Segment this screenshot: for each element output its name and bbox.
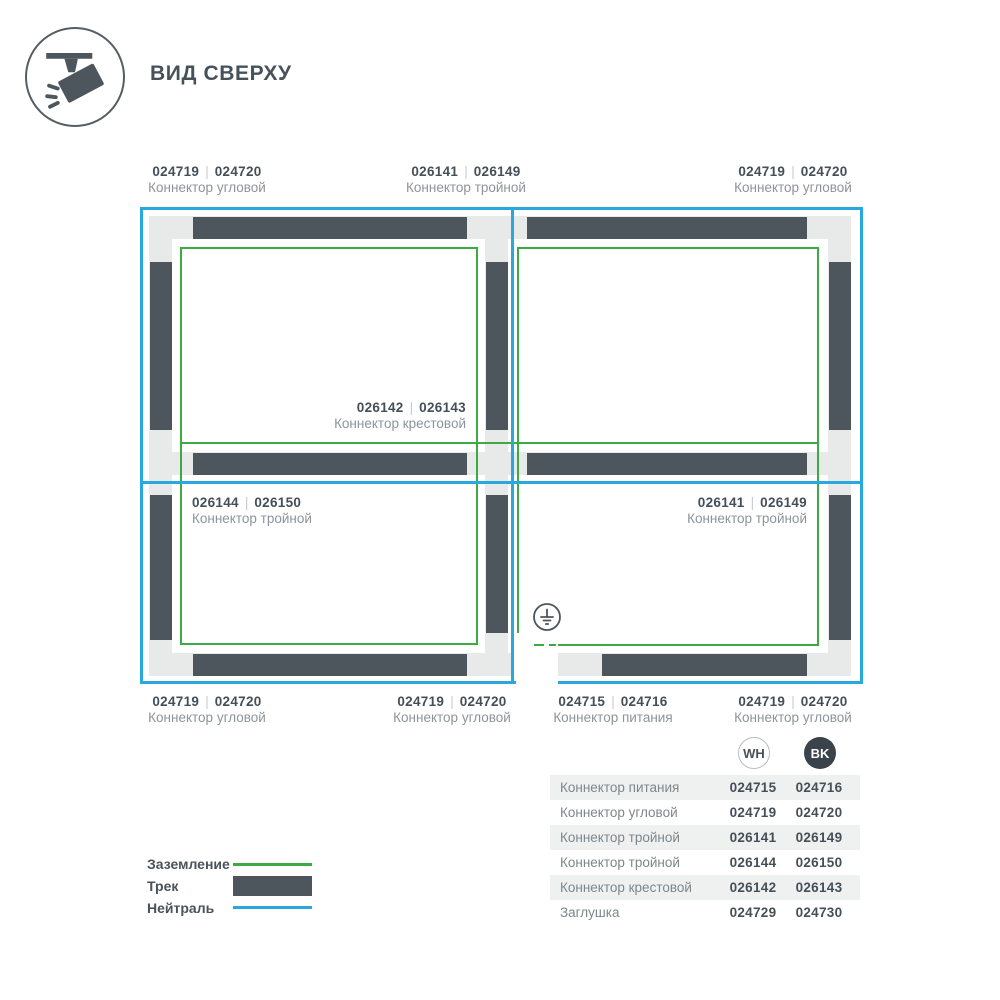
label-code-bk: 026150 [254, 495, 301, 510]
ground-line-segment [180, 442, 819, 444]
label-separator: | [791, 164, 795, 179]
label-code-wh: 026142 [357, 400, 404, 415]
ground-line-segment [558, 644, 818, 646]
cell-bk-code: 026143 [786, 880, 852, 895]
label-code-wh: 026144 [192, 495, 239, 510]
label-separator: | [205, 694, 209, 709]
label-separator: | [791, 694, 795, 709]
ground-line-segment [476, 247, 478, 645]
label-code-bk: 024720 [801, 164, 848, 179]
label-name: Коннектор угловой [57, 180, 357, 196]
neutral-line-swatch [233, 906, 312, 909]
neutral-line-segment [558, 681, 863, 684]
neutral-line-segment [140, 481, 863, 484]
page: ВИД СВЕРХУ [0, 0, 1000, 1000]
track-segment [602, 654, 807, 676]
cell-name: Заглушка [560, 905, 720, 920]
neutral-line-segment [511, 207, 514, 684]
table-row: Заглушка 024729 024730 [550, 900, 860, 925]
table-row: Коннектор питания 024715 024716 [550, 775, 860, 800]
label-code-wh: 026141 [698, 495, 745, 510]
earth-ground-icon [532, 602, 562, 632]
table-row: Коннектор тройной 026141 026149 [550, 825, 860, 850]
label-code-bk: 024720 [215, 164, 262, 179]
wh-color-badge: WH [738, 737, 770, 769]
track-segment [527, 453, 807, 475]
bk-color-badge: BK [804, 737, 836, 769]
ground-line-dash [534, 644, 544, 646]
table-row: Коннектор угловой 024719 024720 [550, 800, 860, 825]
label-code-wh: 024715 [558, 694, 605, 709]
cell-name: Коннектор крестовой [560, 880, 720, 895]
cell-bk-code: 024716 [786, 780, 852, 795]
cell-bk-code: 026150 [786, 855, 852, 870]
track-segment [829, 262, 851, 430]
ground-line-segment [518, 247, 819, 249]
label-code-bk: 026143 [419, 400, 466, 415]
cell-wh-code: 024715 [720, 780, 786, 795]
cell-name: Коннектор питания [560, 780, 720, 795]
ground-line-segment [180, 247, 477, 249]
label-code-bk: 024720 [801, 694, 848, 709]
label-code-wh: 024719 [397, 694, 444, 709]
label-name: Коннектор угловой [643, 710, 943, 726]
ground-line-swatch [233, 863, 312, 866]
cell-wh-code: 026144 [720, 855, 786, 870]
label-code-wh: 026141 [411, 164, 458, 179]
label-code-bk: 026149 [760, 495, 807, 510]
parts-table: Коннектор питания 024715 024716 Коннекто… [550, 775, 860, 925]
connector-label-top-right: 024719|024720 Коннектор угловой [643, 164, 943, 196]
ground-line-dash [549, 644, 556, 646]
label-code-bk: 026149 [474, 164, 521, 179]
label-separator: | [611, 694, 615, 709]
track-segment [150, 495, 172, 640]
label-code-wh: 024719 [738, 694, 785, 709]
track-segment [527, 217, 807, 239]
label-separator: | [450, 694, 454, 709]
label-code-wh: 024719 [152, 694, 199, 709]
track-segment [193, 453, 467, 475]
ground-line-segment [517, 247, 519, 633]
ground-line-segment [180, 247, 182, 645]
label-name: Коннектор тройной [192, 511, 492, 527]
label-separator: | [205, 164, 209, 179]
label-separator: | [410, 400, 414, 415]
ground-line-segment [180, 643, 478, 645]
table-row: Коннектор тройной 026144 026150 [550, 850, 860, 875]
ground-line-segment [817, 247, 819, 646]
connector-label-top-middle: 026141|026149 Коннектор тройной [316, 164, 616, 196]
connector-label-center-cross: 026142|026143 Коннектор крестовой [166, 400, 466, 432]
track-segment [829, 495, 851, 640]
cell-wh-code: 026142 [720, 880, 786, 895]
table-row: Коннектор крестовой 026142 026143 [550, 875, 860, 900]
label-separator: | [245, 495, 249, 510]
cell-bk-code: 026149 [786, 830, 852, 845]
legend-label-ground: Заземление [147, 856, 230, 872]
track-segment [193, 654, 467, 676]
cell-name: Коннектор тройной [560, 855, 720, 870]
cell-bk-code: 024720 [786, 805, 852, 820]
connector-label-middle-left: 026144|026150 Коннектор тройной [192, 495, 492, 527]
label-code-bk: 024720 [215, 694, 262, 709]
label-separator: | [464, 164, 468, 179]
track-segment [193, 217, 467, 239]
label-separator: | [751, 495, 755, 510]
cell-name: Коннектор угловой [560, 805, 720, 820]
neutral-line-segment [140, 681, 516, 684]
label-name: Коннектор угловой [643, 180, 943, 196]
label-name: Коннектор крестовой [166, 416, 466, 432]
cell-wh-code: 024729 [720, 905, 786, 920]
cell-name: Коннектор тройной [560, 830, 720, 845]
label-code-wh: 024719 [152, 164, 199, 179]
track-spotlight-icon [27, 29, 123, 125]
label-name: Коннектор тройной [507, 511, 807, 527]
connector-label-middle-right: 026141|026149 Коннектор тройной [507, 495, 807, 527]
neutral-line-segment [860, 207, 863, 684]
neutral-line-segment [140, 207, 863, 210]
cell-wh-code: 026141 [720, 830, 786, 845]
top-view-icon [25, 27, 125, 127]
track-segment [486, 262, 508, 430]
legend-label-neutral: Нейтраль [147, 900, 214, 916]
label-code-wh: 024719 [738, 164, 785, 179]
cell-wh-code: 024719 [720, 805, 786, 820]
connector-label-top-left: 024719|024720 Коннектор угловой [57, 164, 357, 196]
legend-label-track: Трек [147, 878, 178, 894]
neutral-line-segment [140, 207, 143, 684]
page-title: ВИД СВЕРХУ [150, 62, 292, 86]
cell-bk-code: 024730 [786, 905, 852, 920]
connector-label-bottom-right: 024719|024720 Коннектор угловой [643, 694, 943, 726]
label-name: Коннектор тройной [316, 180, 616, 196]
track-swatch [233, 876, 312, 896]
